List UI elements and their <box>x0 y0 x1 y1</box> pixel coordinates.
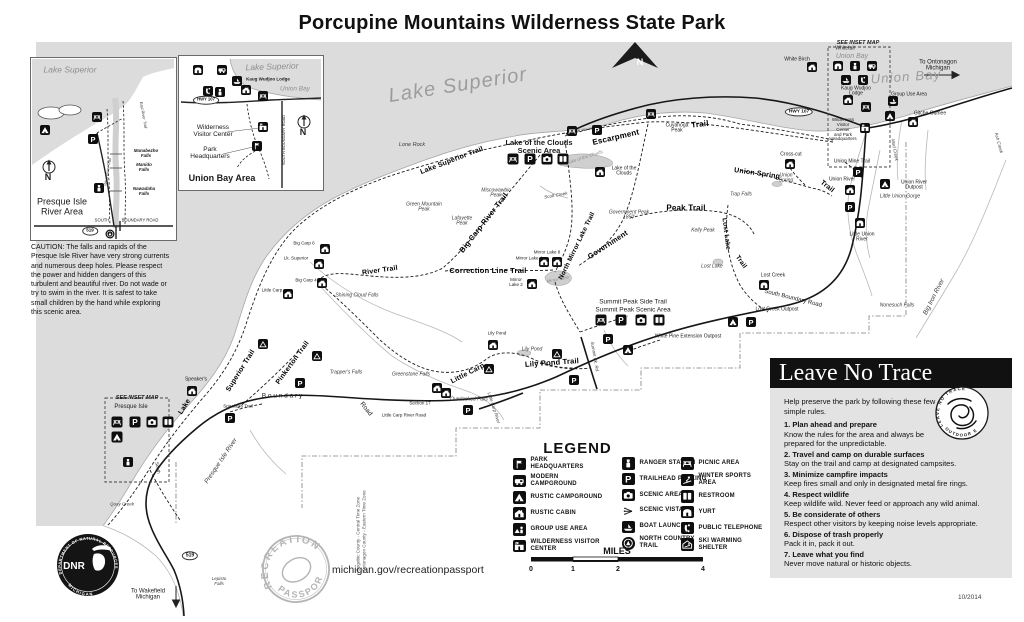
lnt-rule-heading: 7. Leave what you find <box>784 550 1010 560</box>
cabin-icon <box>488 340 498 350</box>
boat-icon <box>888 96 898 106</box>
map-label: Lone Rock <box>399 143 425 149</box>
map-label: Shining Cloud Falls <box>335 293 378 298</box>
svg-text:PASSPORT: PASSPORT <box>269 554 329 607</box>
svg-text:RECREATION: RECREATION <box>250 526 331 591</box>
map-label: Lost Lake <box>701 264 723 269</box>
modern-icon <box>867 61 877 71</box>
scenic-icon <box>622 489 635 502</box>
rustic-icon <box>728 317 738 327</box>
lnt-rule-body: Stay on the trail and camp at designated… <box>784 459 1010 469</box>
yurt-icon <box>681 506 694 519</box>
scale-tick-label: 4 <box>701 566 705 573</box>
picnic-icon <box>861 102 871 112</box>
map-label: White Pine Extension Outpost <box>655 334 721 339</box>
legend-column: PICNIC AREAWINTER SPORTS AREARESTROOMYUR… <box>681 457 771 555</box>
map-label: Lost Lake <box>721 218 732 251</box>
ranger-icon <box>123 457 133 467</box>
lnt-rule-heading: 5. Be considerate of others <box>784 510 1010 520</box>
leave-no-trace-intro: Help preserve the park by following thes… <box>784 397 944 417</box>
ranger-icon <box>215 87 225 97</box>
map-label: NawadahaFalls <box>133 187 155 197</box>
map-label: Union Mine Trail <box>834 159 870 164</box>
map-label: Lost Creek Outpost <box>755 307 798 312</box>
scale-tick-label: 1 <box>571 566 575 573</box>
legend-item: MODERN CAMPGROUND <box>513 474 603 488</box>
legend-item-label: RUSTIC CAMPGROUND <box>531 494 603 501</box>
map-label: Lake <box>177 398 192 416</box>
map-label: Superior Trail <box>225 349 257 394</box>
restroom-icon <box>654 315 665 326</box>
inset-north-arrow-icon <box>43 160 55 174</box>
restroom-icon <box>163 417 174 428</box>
map-label: Quay Creek <box>110 503 134 508</box>
parking-icon: P <box>463 405 473 415</box>
map-label: UnionSpring <box>779 174 793 185</box>
map-label: Little UnionRiver <box>849 233 874 244</box>
skishelter-icon <box>681 538 694 551</box>
parking-icon: P <box>295 378 305 388</box>
map-label: Lily Pond <box>488 332 507 337</box>
legend-item: SKI WARMING SHELTER <box>681 538 771 552</box>
cabin-icon <box>513 507 526 520</box>
map-label: Union Bay <box>280 85 310 92</box>
map-label: 519 <box>82 227 98 236</box>
inset-north-arrow-icon <box>298 115 310 129</box>
page-title: Porcupine Mountains Wilderness State Par… <box>0 12 1024 35</box>
parking-icon: P <box>130 417 141 428</box>
legend-item-label: SCENIC VISTA <box>640 507 684 514</box>
parking-icon: P <box>845 202 855 212</box>
rustic-icon <box>623 345 633 355</box>
scale-tick-label: 2 <box>616 566 620 573</box>
legend-item-label: MODERN CAMPGROUND <box>531 474 603 488</box>
map-label: Union RiverOutpost <box>901 181 927 192</box>
map-label: White Birch <box>784 57 810 62</box>
scale-tick-label: 0 <box>529 566 533 573</box>
modern-icon <box>513 475 526 488</box>
map-label: Lake Superior <box>245 61 298 72</box>
nct-icon <box>106 230 115 239</box>
map-label: MirrorLake 2 <box>509 278 523 288</box>
map-label: North Mirror Lake Trail <box>558 211 597 281</box>
legend-item-label: WINTER SPORTS AREA <box>699 473 771 487</box>
map-label: Government Peak1850' <box>609 211 649 222</box>
map-label: Lake Superior Trail <box>419 146 484 177</box>
to-wakefield-arrow-icon <box>173 586 180 607</box>
cabin-icon <box>908 117 918 127</box>
map-label: Lk. Superior <box>284 257 308 262</box>
ranger-icon <box>850 61 860 71</box>
lnt-rule-heading: 2. Travel and camp on durable surfaces <box>784 450 1010 460</box>
visitor-icon <box>513 540 526 553</box>
map-label: Government <box>586 229 629 261</box>
map-label: Green MountainPeak <box>406 203 442 214</box>
map-label: Road <box>358 401 373 418</box>
svg-text:P: P <box>227 414 232 423</box>
caution-note: CAUTION: The falls and rapids of the Pre… <box>31 243 173 317</box>
map-label: SEE INSET MAP <box>116 396 158 402</box>
map-label: LepistoFalls <box>212 577 227 587</box>
phone-icon <box>858 75 868 85</box>
map-label: HWY 107 <box>785 107 813 116</box>
parking-icon: P <box>622 473 635 486</box>
lnt-rule-body: Keep fires small and only in designated … <box>784 479 1010 489</box>
map-label: Summit Pk. Rd. <box>589 341 599 373</box>
svg-text:P: P <box>571 376 576 385</box>
north-arrow-icon: N <box>612 42 658 68</box>
map-label: Scott Creek <box>544 192 568 201</box>
legend-item-label: PUBLIC TELEPHONE <box>699 525 763 532</box>
svg-text:P: P <box>618 316 624 325</box>
map-label: Little Carp River Road <box>382 414 426 419</box>
cabin-icon <box>441 388 451 398</box>
map-label: Big Carp 4 <box>295 279 316 284</box>
rustic-icon <box>40 125 50 135</box>
rustic-icon <box>112 432 123 443</box>
lnt-rule-heading: 4. Respect wildlife <box>784 490 1010 500</box>
scenic-icon <box>636 315 647 326</box>
map-label: Pinkerton Trail <box>275 340 311 386</box>
svg-text:P: P <box>855 168 860 177</box>
svg-text:P: P <box>625 475 631 485</box>
legend-item-label: RUSTIC CABIN <box>531 510 576 517</box>
map-label: WildernessVisitor Center <box>193 124 232 138</box>
scenic-icon <box>542 154 553 165</box>
svg-text:DEPARTMENT OF NATURAL RESOURCE: DEPARTMENT OF NATURAL RESOURCES <box>57 536 119 575</box>
picnic-icon <box>92 112 102 122</box>
legend-column: PARK HEADQUARTERSMODERN CAMPGROUNDRUSTIC… <box>513 457 603 556</box>
svg-text:P: P <box>594 126 599 135</box>
rustic-icon <box>513 491 526 504</box>
cabin-icon <box>843 95 853 105</box>
parking-icon: P <box>853 167 863 177</box>
shelter-icon <box>312 351 322 361</box>
map-label: Ash Creek <box>993 132 1003 154</box>
map-label: LafayettePeak <box>452 217 473 228</box>
lnt-rule-heading: 3. Minimize campfire impacts <box>784 470 1010 480</box>
svg-text:P: P <box>132 418 138 427</box>
map-label: Union Spring <box>734 167 781 181</box>
leave-no-trace-title: Leave No Trace <box>770 358 1012 388</box>
parking-icon: P <box>603 334 613 344</box>
map-label: WildernessVisitorCenterand ParkHeadquart… <box>829 118 856 142</box>
picnic-icon <box>508 154 519 165</box>
boat-icon <box>841 75 851 85</box>
svg-text:DNR: DNR <box>63 561 85 572</box>
restroom-icon <box>558 154 569 165</box>
legend-item: RUSTIC CAMPGROUND <box>513 491 603 504</box>
map-label: BOUNDARY ROAD <box>122 219 159 224</box>
parking-icon: P <box>616 315 627 326</box>
cabin-icon <box>187 386 197 396</box>
map-label: N <box>45 173 52 183</box>
picnic-icon <box>567 126 577 136</box>
hq-icon <box>513 458 526 471</box>
legend-item-label: PARK HEADQUARTERS <box>531 457 603 471</box>
map-label: South <box>153 462 160 475</box>
cabin-icon <box>241 85 251 95</box>
svg-text:N: N <box>637 57 644 67</box>
vista-icon <box>622 505 635 518</box>
legend-item: YURT <box>681 506 771 519</box>
cabin-icon <box>317 278 327 288</box>
map-label: Greenstone Falls <box>392 372 430 377</box>
map-label: To OntonagonMichigan <box>919 60 957 73</box>
rustic-icon <box>885 111 895 121</box>
legend-item: WINTER SPORTS AREA <box>681 473 771 487</box>
map-label: Presque Isle <box>114 404 147 410</box>
map-label: Kelly Peak <box>691 228 715 233</box>
modern-icon <box>217 65 227 75</box>
map-label: Trapper's Falls <box>330 370 363 375</box>
legend-item-label: YURT <box>699 509 716 516</box>
leave-no-trace-panel: Leave No Trace Help preserve the park by… <box>770 358 1012 578</box>
cabin-icon <box>785 159 795 169</box>
yurt-icon <box>759 280 769 290</box>
legend-item-label: SKI WARMING SHELTER <box>699 538 771 552</box>
winter-icon <box>681 474 694 487</box>
map-label: Cross-cut <box>780 152 801 157</box>
recreation-passport-stamp: RECREATION PASSPORT <box>250 526 338 612</box>
svg-text:P: P <box>748 318 753 327</box>
ranger-icon <box>94 183 104 193</box>
picnic-icon <box>258 91 268 101</box>
parking-icon: P <box>525 154 536 165</box>
leave-no-trace-rules: 1. Plan ahead and prepareKnow the rules … <box>784 420 1010 570</box>
map-label: Overlooked Falls <box>450 397 488 402</box>
parking-icon: P <box>569 375 579 385</box>
svg-text:P: P <box>297 379 302 388</box>
cabin-icon <box>320 244 330 254</box>
map-label: Lake of theClouds <box>612 167 637 178</box>
picnic-icon <box>596 315 607 326</box>
legend-item-label: BOAT LAUNCH <box>640 523 686 530</box>
map-label: Section 17 <box>409 402 430 407</box>
visitor-icon <box>258 122 268 132</box>
parking-icon: P <box>225 413 235 423</box>
picnic-icon <box>681 457 694 470</box>
rustic-icon <box>880 179 890 189</box>
phone-icon <box>203 86 213 96</box>
yurt-icon <box>855 218 865 228</box>
map-label: ManabezhoFalls <box>134 149 159 159</box>
parking-icon: P <box>88 134 98 144</box>
lnt-rule-heading: 1. Plan ahead and prepare <box>784 420 1010 430</box>
hq-icon <box>252 141 262 151</box>
map-label: Union Bay Area <box>189 174 256 184</box>
map-label: Summit Peak Scenic Area <box>595 306 670 313</box>
svg-text:P: P <box>527 155 533 164</box>
svg-text:P: P <box>90 135 95 144</box>
lnt-rule-body: Know the rules for the area and always b… <box>784 430 942 449</box>
map-label: Lake Superior <box>387 64 529 107</box>
map-label: Speaker's Trail <box>223 405 253 410</box>
map-label: River Trail <box>362 265 399 277</box>
legend-item-label: PICNIC AREA <box>699 460 740 467</box>
map-label: Union River <box>829 177 855 182</box>
yurt-icon <box>833 61 843 71</box>
cabin-icon <box>539 257 549 267</box>
scenic-icon <box>147 417 158 428</box>
michigan-shape-icon <box>92 545 112 570</box>
legend-item-label: RESTROOM <box>699 493 735 500</box>
map-label: Kaug Wudjoo Lodge <box>246 78 290 83</box>
revision-date: 10/2014 <box>958 594 982 601</box>
map-label: Little Carp <box>450 362 486 385</box>
lnt-rule-body: Pack it in, pack it out. <box>784 539 1010 549</box>
timezone-note: Gogebic County - Central Time Zone Onton… <box>356 490 369 571</box>
cabin-icon <box>314 259 324 269</box>
map-label: Lake Superior <box>44 65 97 74</box>
parking-icon: P <box>592 125 602 135</box>
legend-item: PUBLIC TELEPHONE <box>681 522 771 535</box>
visitor-icon <box>860 123 870 133</box>
legend-item: PARK HEADQUARTERS <box>513 457 603 471</box>
legend-item-label: SCENIC AREA <box>640 492 683 499</box>
legend-item-label: GROUP USE AREA <box>531 526 588 533</box>
svg-text:P: P <box>847 203 852 212</box>
park-map-page: N Porcupine Mountains Wilderness State P… <box>0 0 1024 622</box>
boat-icon <box>622 521 635 534</box>
lnt-rule-body: Never move natural or historic objects. <box>784 559 1010 569</box>
map-label: Speaker's <box>185 377 207 382</box>
map-label: Little Union Gorge <box>880 194 920 199</box>
shelter-icon <box>484 364 494 374</box>
legend-item: RUSTIC CABIN <box>513 507 603 520</box>
legend-item: PICNIC AREA <box>681 457 771 470</box>
legend-title: LEGEND <box>520 440 635 457</box>
map-label: Mud Creek <box>890 139 899 162</box>
map-label: Union Bay <box>836 53 868 61</box>
cabin-icon <box>845 185 855 195</box>
restroom-icon <box>681 490 694 503</box>
cabin-icon <box>527 279 537 289</box>
svg-text:MICHIGAN: MICHIGAN <box>67 583 94 597</box>
cabin-icon <box>807 62 817 72</box>
group-icon <box>513 523 526 536</box>
map-label: Little Carp River <box>486 392 501 424</box>
map-label: Gitche Gumee <box>914 111 946 116</box>
ranger-icon <box>622 457 635 470</box>
svg-text:P: P <box>465 406 470 415</box>
cabin-icon <box>283 289 293 299</box>
map-label: Presque IsleRiver Area <box>37 197 87 216</box>
map-label: Big Iron River <box>922 278 946 316</box>
svg-text:P: P <box>605 335 610 344</box>
shelter-icon <box>258 339 268 349</box>
map-label: To WakefieldMichigan <box>131 589 165 602</box>
map-label: HWY 107 <box>193 96 219 105</box>
map-label: 519 <box>182 551 198 560</box>
cabin-icon <box>595 167 605 177</box>
map-label: Little Carp <box>262 289 283 294</box>
lnt-rule-body: Keep wildlife wild. Never feed or approa… <box>784 499 1010 509</box>
legend-item: GROUP USE AREA <box>513 523 603 536</box>
map-label: Lost Creek <box>761 273 785 278</box>
map-label: Lily Pond <box>522 347 543 352</box>
map-label: Peak Trail <box>666 205 705 214</box>
map-label: Trap Falls <box>730 192 752 197</box>
scale-title: MILES <box>577 546 657 556</box>
map-label: B o u n d a r y <box>262 392 302 399</box>
dnr-logo: DEPARTMENT OF NATURAL RESOURCES MICHIGAN… <box>57 534 119 597</box>
map-label: SOUTH <box>95 219 110 224</box>
legend-item: RESTROOM <box>681 490 771 503</box>
map-label: Nonesuch Falls <box>880 303 914 308</box>
map-label: Presque Isle River <box>203 437 239 485</box>
lnt-rule-heading: 6. Dispose of trash properly <box>784 530 1010 540</box>
picnic-icon <box>646 109 656 119</box>
parking-icon: P <box>746 317 756 327</box>
lnt-rule-body: Respect other visitors by keeping noise … <box>784 519 1010 529</box>
map-label: Trail <box>691 120 709 130</box>
yurt-icon <box>193 65 203 75</box>
map-label: Trail <box>734 254 748 270</box>
map-label: ParkHeadquarters <box>190 146 229 160</box>
map-label: SOUTH BOUNDARY ROAD <box>282 115 286 165</box>
map-label: N <box>300 128 307 138</box>
map-label: Big Carp 6 <box>293 242 314 247</box>
map-label: Mirror Lake <box>546 275 569 284</box>
map-label: ManidoFalls <box>136 163 152 173</box>
picnic-icon <box>112 417 123 428</box>
map-label: Summit Peak Side Trail <box>599 298 667 305</box>
map-label: CuyahogaPeak <box>666 124 689 135</box>
map-label: Whitetail <box>835 46 854 51</box>
map-label: Correction Line Trail <box>449 267 526 275</box>
phone-icon <box>681 522 694 535</box>
cabin-icon <box>552 257 562 267</box>
shelter-icon <box>552 349 562 359</box>
